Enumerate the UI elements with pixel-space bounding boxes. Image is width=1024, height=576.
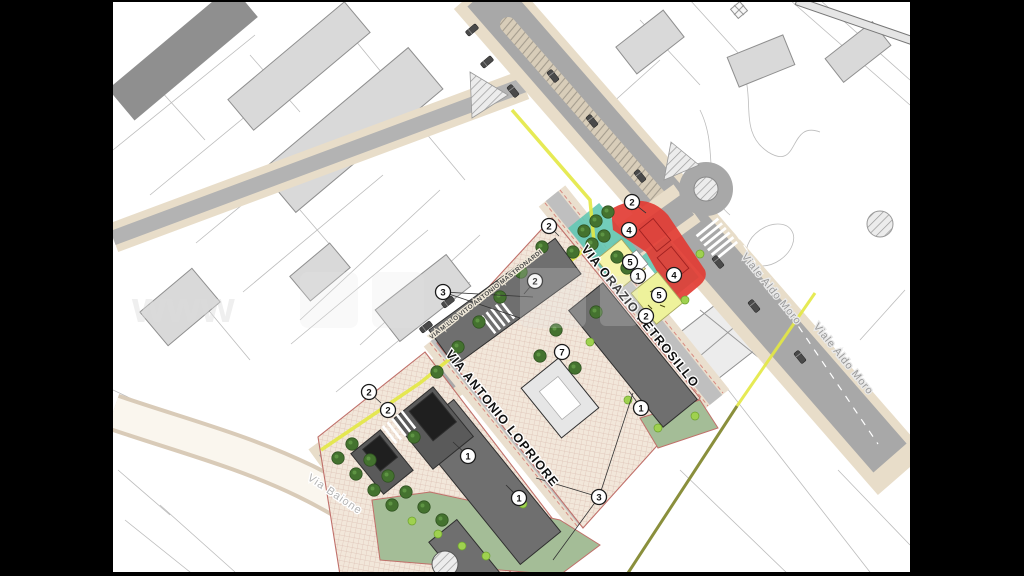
tree-icon xyxy=(611,251,623,263)
numbered-marker-2: 2 xyxy=(362,385,377,400)
numbered-marker-2: 2 xyxy=(542,219,557,234)
shrub-icon xyxy=(458,542,466,550)
tree-icon xyxy=(473,316,485,328)
svg-text:2: 2 xyxy=(366,387,371,398)
svg-text:2: 2 xyxy=(629,197,634,208)
letterbox-left xyxy=(0,0,113,576)
tree-icon xyxy=(602,206,614,218)
roundabout-island xyxy=(694,177,718,201)
numbered-marker-5: 5 xyxy=(652,288,667,303)
tree-icon xyxy=(400,486,412,498)
numbered-marker-4: 4 xyxy=(667,268,682,283)
svg-text:3: 3 xyxy=(440,287,445,298)
site-plan-svg: VIA ORAZIO PETROSILLOVIA ANTONIO LOPRIOR… xyxy=(0,0,1024,576)
tree-icon xyxy=(368,484,380,496)
tree-icon xyxy=(534,350,546,362)
tree-icon xyxy=(408,431,420,443)
svg-text:1: 1 xyxy=(465,451,471,462)
shrub-icon xyxy=(482,552,490,560)
svg-text:2: 2 xyxy=(643,311,648,322)
tree-icon xyxy=(590,215,602,227)
tree-icon xyxy=(567,246,579,258)
svg-text:2: 2 xyxy=(385,405,390,416)
shrub-icon xyxy=(434,530,442,538)
svg-text:1: 1 xyxy=(516,493,522,504)
tree-icon xyxy=(382,470,394,482)
tree-icon xyxy=(569,362,581,374)
svg-text:1: 1 xyxy=(638,403,644,414)
numbered-marker-7: 7 xyxy=(555,345,570,360)
numbered-marker-2: 2 xyxy=(381,403,396,418)
svg-text:5: 5 xyxy=(656,290,662,301)
tree-icon xyxy=(418,501,430,513)
tree-icon xyxy=(386,499,398,511)
numbered-marker-2: 2 xyxy=(625,195,640,210)
tree-icon xyxy=(346,438,358,450)
letterbox-top xyxy=(0,0,1024,2)
letterbox-right xyxy=(910,0,1024,576)
numbered-marker-4: 4 xyxy=(622,223,637,238)
site-plan-screenshot: VIA ORAZIO PETROSILLOVIA ANTONIO LOPRIOR… xyxy=(0,0,1024,576)
tree-icon xyxy=(494,291,506,303)
svg-text:7: 7 xyxy=(559,347,564,358)
shrub-icon xyxy=(696,250,704,258)
shrub-icon xyxy=(654,424,662,432)
tree-icon xyxy=(332,452,344,464)
letterbox-bottom xyxy=(0,572,1024,576)
watermark-text: www xyxy=(131,283,235,332)
splitter-island xyxy=(867,211,893,237)
shrub-icon xyxy=(681,296,689,304)
shrub-icon xyxy=(691,412,699,420)
tree-icon xyxy=(578,225,590,237)
numbered-marker-3: 3 xyxy=(592,490,607,505)
svg-text:3: 3 xyxy=(596,492,601,503)
numbered-marker-1: 1 xyxy=(634,401,649,416)
tree-icon xyxy=(436,514,448,526)
shrub-icon xyxy=(586,338,594,346)
tree-icon xyxy=(364,454,376,466)
svg-text:4: 4 xyxy=(671,270,677,281)
numbered-marker-1: 1 xyxy=(461,449,476,464)
svg-text:4: 4 xyxy=(626,225,632,236)
shrub-icon xyxy=(408,517,416,525)
tree-icon xyxy=(598,230,610,242)
svg-text:2: 2 xyxy=(546,221,551,232)
numbered-marker-2: 2 xyxy=(639,309,654,324)
numbered-marker-3: 3 xyxy=(436,285,451,300)
tree-icon xyxy=(431,366,443,378)
numbered-marker-1: 1 xyxy=(512,491,527,506)
numbered-marker-5: 5 xyxy=(623,255,638,270)
svg-text:5: 5 xyxy=(627,257,633,268)
tree-icon xyxy=(350,468,362,480)
